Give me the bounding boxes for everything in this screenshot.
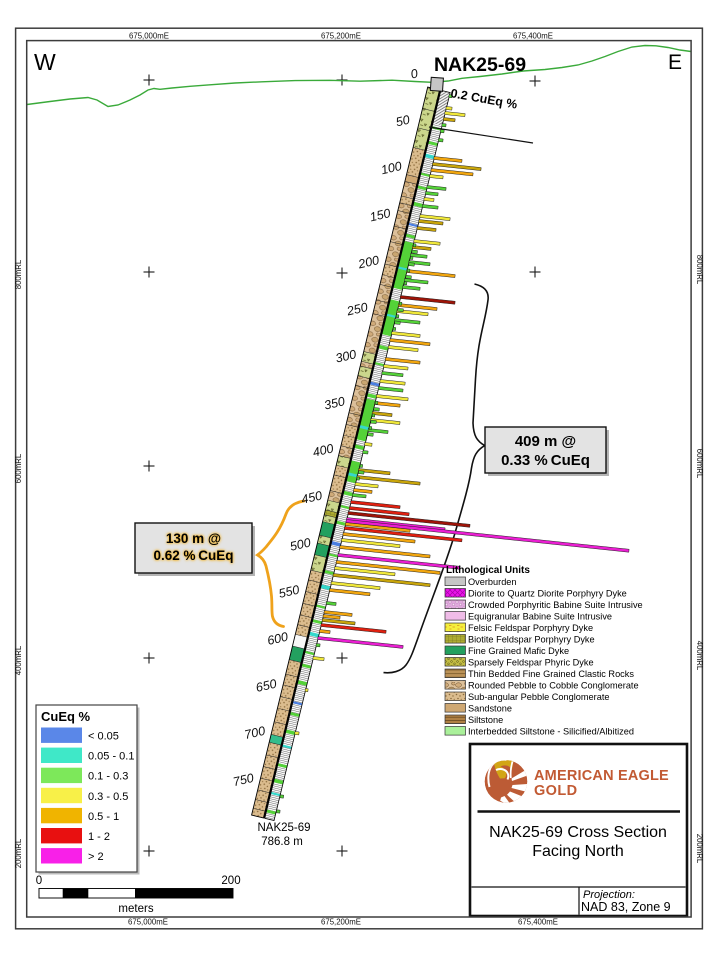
- svg-text:Fine Grained Mafic Dyke: Fine Grained Mafic Dyke: [468, 646, 569, 656]
- svg-text:Equigranular Babine Suite Intr: Equigranular Babine Suite Intrusive: [468, 611, 612, 621]
- svg-text:NAK25-69 Cross Section: NAK25-69 Cross Section: [489, 824, 667, 841]
- svg-text:200mRL: 200mRL: [14, 838, 23, 868]
- svg-text:0: 0: [36, 875, 42, 887]
- svg-text:600mRL: 600mRL: [14, 453, 23, 483]
- svg-text:675,200mE: 675,200mE: [321, 31, 361, 40]
- svg-text:0.5 - 1: 0.5 - 1: [88, 811, 119, 823]
- svg-text:675,400mE: 675,400mE: [513, 31, 553, 40]
- svg-text:675,400mE: 675,400mE: [518, 918, 558, 927]
- svg-text:Rounded Pebble to Cobble Congl: Rounded Pebble to Cobble Conglomerate: [468, 680, 639, 690]
- svg-text:Interbedded Siltstone - Silici: Interbedded Siltstone - Silicified/Albit…: [468, 726, 634, 736]
- svg-text:409 m @: 409 m @: [515, 433, 576, 450]
- svg-text:0.62 % CuEq: 0.62 % CuEq: [154, 548, 234, 563]
- svg-text:Sandstone: Sandstone: [468, 703, 512, 713]
- svg-text:Crowded Porphyritic Babine Sui: Crowded Porphyritic Babine Suite Intrusi…: [468, 600, 643, 610]
- svg-text:400mRL: 400mRL: [14, 645, 23, 675]
- svg-text:< 0.05: < 0.05: [88, 731, 119, 743]
- svg-text:600mRL: 600mRL: [695, 449, 704, 479]
- svg-text:AMERICAN EAGLE: AMERICAN EAGLE: [534, 768, 669, 784]
- svg-text:200: 200: [221, 875, 240, 887]
- svg-text:Felsic Feldspar Porphyry Dyke: Felsic Feldspar Porphyry Dyke: [468, 623, 593, 633]
- svg-text:NAD 83, Zone 9: NAD 83, Zone 9: [581, 900, 671, 914]
- svg-text:0.1 - 0.3: 0.1 - 0.3: [88, 771, 128, 783]
- svg-text:Overburden: Overburden: [468, 577, 517, 587]
- svg-text:Thin Bedded Fine Grained Clast: Thin Bedded Fine Grained Clastic Rocks: [468, 669, 634, 679]
- svg-text:0.3 - 0.5: 0.3 - 0.5: [88, 791, 128, 803]
- svg-text:Diorite to Quartz Diorite Porp: Diorite to Quartz Diorite Porphyry Dyke: [468, 588, 627, 598]
- svg-text:W: W: [34, 49, 56, 75]
- svg-text:Sparsely Feldspar Phyric Dyke: Sparsely Feldspar Phyric Dyke: [468, 657, 594, 667]
- svg-text:800mRL: 800mRL: [14, 259, 23, 289]
- svg-text:675,000mE: 675,000mE: [129, 31, 169, 40]
- svg-text:NAK25-69: NAK25-69: [257, 822, 310, 834]
- svg-text:675,000mE: 675,000mE: [128, 918, 168, 927]
- svg-text:Facing North: Facing North: [532, 843, 624, 860]
- svg-text:CuEq %: CuEq %: [41, 709, 91, 724]
- svg-text:786.8 m: 786.8 m: [261, 836, 303, 848]
- svg-text:meters: meters: [118, 903, 153, 915]
- svg-text:E: E: [668, 51, 682, 74]
- svg-text:0.05 - 0.1: 0.05 - 0.1: [88, 751, 134, 763]
- svg-text:200mRL: 200mRL: [695, 834, 704, 864]
- svg-text:400mRL: 400mRL: [695, 641, 704, 671]
- svg-text:> 2: > 2: [88, 851, 104, 863]
- svg-text:Sub-angular Pebble Conglomerat: Sub-angular Pebble Conglomerate: [468, 692, 609, 702]
- svg-text:Siltstone: Siltstone: [468, 715, 503, 725]
- svg-text:1 - 2: 1 - 2: [88, 831, 110, 843]
- svg-text:675,200mE: 675,200mE: [321, 918, 361, 927]
- svg-text:800mRL: 800mRL: [695, 255, 704, 285]
- svg-text:130 m @: 130 m @: [166, 531, 221, 546]
- svg-text:Biotite Feldspar Porphyry Dyke: Biotite Feldspar Porphyry Dyke: [468, 634, 595, 644]
- svg-text:0.33 % CuEq: 0.33 % CuEq: [501, 452, 590, 469]
- svg-text:GOLD: GOLD: [534, 783, 578, 799]
- svg-text:Lithological Units: Lithological Units: [446, 565, 530, 576]
- svg-text:NAK25-69: NAK25-69: [434, 54, 526, 76]
